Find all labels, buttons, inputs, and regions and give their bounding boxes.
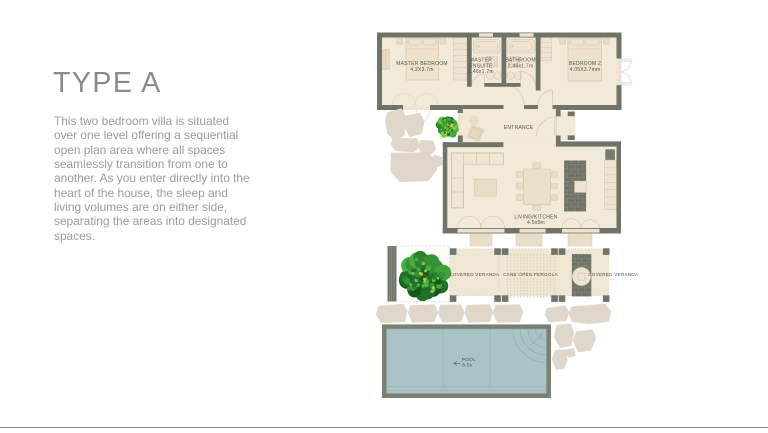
- svg-text:2.46x1.7m: 2.46x1.7m: [468, 69, 494, 75]
- svg-text:CANE OPEN PERGOLA: CANE OPEN PERGOLA: [503, 272, 558, 277]
- svg-text:ENTRANCE: ENTRANCE: [504, 125, 534, 131]
- svg-text:4.2X3.7m: 4.2X3.7m: [410, 67, 433, 73]
- svg-text:2.46x1.7m: 2.46x1.7m: [508, 63, 534, 69]
- svg-text:4.5x9m: 4.5x9m: [527, 220, 545, 226]
- svg-text:8.5x: 8.5x: [462, 362, 472, 368]
- svg-text:4.05X3.7mm: 4.05X3.7mm: [570, 67, 601, 73]
- svg-text:COVERED VERANDA: COVERED VERANDA: [449, 272, 500, 277]
- svg-text:COVERED VERANDA: COVERED VERANDA: [588, 272, 639, 277]
- svg-text:POOL: POOL: [462, 357, 476, 363]
